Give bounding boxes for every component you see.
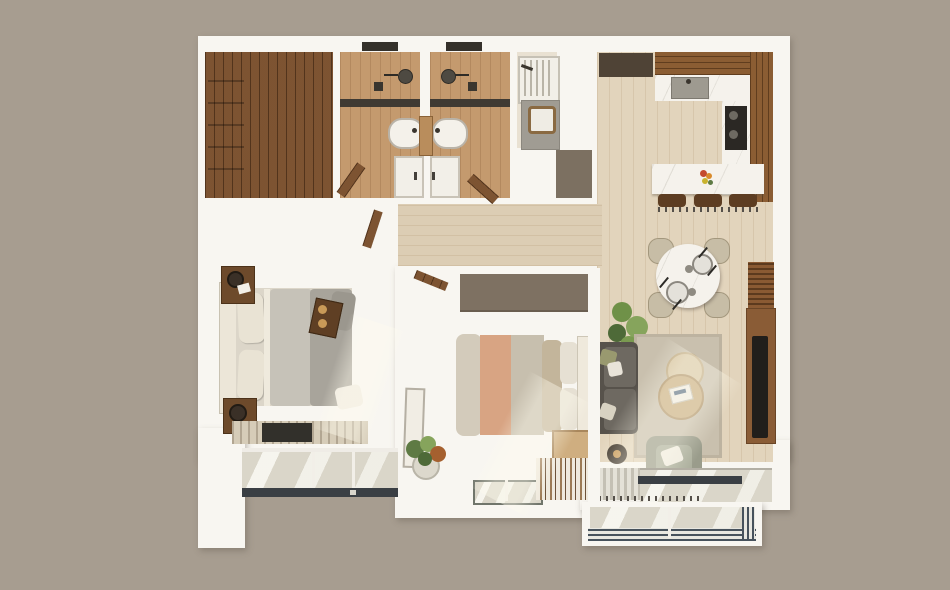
shower-arm [384, 74, 398, 76]
divider-shelf [419, 116, 433, 156]
bay-window-track [242, 488, 398, 497]
basin-faucet [412, 128, 417, 133]
shower-tray-door [394, 156, 424, 198]
shower-bench [430, 99, 510, 107]
closet-floor-notch [300, 100, 330, 146]
track-handle [350, 490, 356, 495]
plant-foliage [430, 446, 446, 462]
wall-bedroom2-right [588, 268, 600, 504]
pillow [237, 349, 266, 400]
floor-plan-render [0, 0, 950, 590]
peach-blanket [480, 335, 513, 435]
side-table-lamp [613, 450, 621, 458]
entry-door-mat [556, 150, 592, 198]
balcony-divider [668, 507, 671, 538]
bowl [685, 265, 693, 273]
shower-head [398, 69, 413, 84]
pillow-tan [542, 340, 562, 432]
shower-control [374, 82, 383, 91]
window-slot [446, 42, 482, 51]
flower-leaf [708, 180, 713, 185]
shower-head [441, 69, 456, 84]
bay-mullion [312, 452, 315, 488]
shower-arm [455, 74, 469, 76]
door-handle [432, 172, 435, 180]
duvet-light [270, 289, 312, 406]
duvet [511, 335, 544, 435]
sofa-pillow [607, 361, 624, 378]
bowl [688, 288, 696, 296]
wardrobe-block [460, 274, 588, 312]
table-lamp [229, 404, 247, 422]
bedroom2-rug [536, 458, 588, 500]
pillow [560, 342, 578, 384]
wardrobe-shelf-lines [208, 60, 244, 190]
bay-window-glass [242, 452, 398, 488]
fridge [599, 53, 653, 77]
tray-plate [318, 319, 327, 328]
oval-basin [432, 118, 468, 149]
tv [752, 336, 768, 438]
pillow [560, 388, 578, 430]
bed-foot-drape [456, 334, 482, 436]
terracotta-floor [403, 476, 473, 504]
rug-center-band [262, 423, 312, 442]
curtain-ticks [592, 496, 704, 501]
closet-floor [248, 95, 304, 198]
window-slot [362, 42, 398, 51]
kitchen-island [652, 164, 764, 194]
bedroom2-window [473, 480, 543, 505]
room-hallway [398, 204, 602, 266]
burner [729, 111, 738, 120]
dining-table [656, 244, 720, 308]
door-handle [414, 172, 417, 180]
bay-mullion [352, 452, 355, 488]
shower-control [468, 82, 477, 91]
plant-foliage [418, 452, 432, 466]
window-divider [505, 480, 508, 501]
tray-plate [318, 305, 327, 314]
sliding-window-frame [638, 476, 742, 484]
balcony-railing-right [742, 507, 755, 539]
balcony-railing-bottom [588, 528, 756, 541]
shower-bench [340, 99, 420, 107]
burner [729, 130, 738, 139]
basin-faucet [435, 128, 440, 133]
laundry-basket [528, 106, 556, 134]
slab-left-leg [198, 428, 245, 548]
sink-tap [686, 79, 691, 84]
slat-panel [748, 262, 774, 308]
